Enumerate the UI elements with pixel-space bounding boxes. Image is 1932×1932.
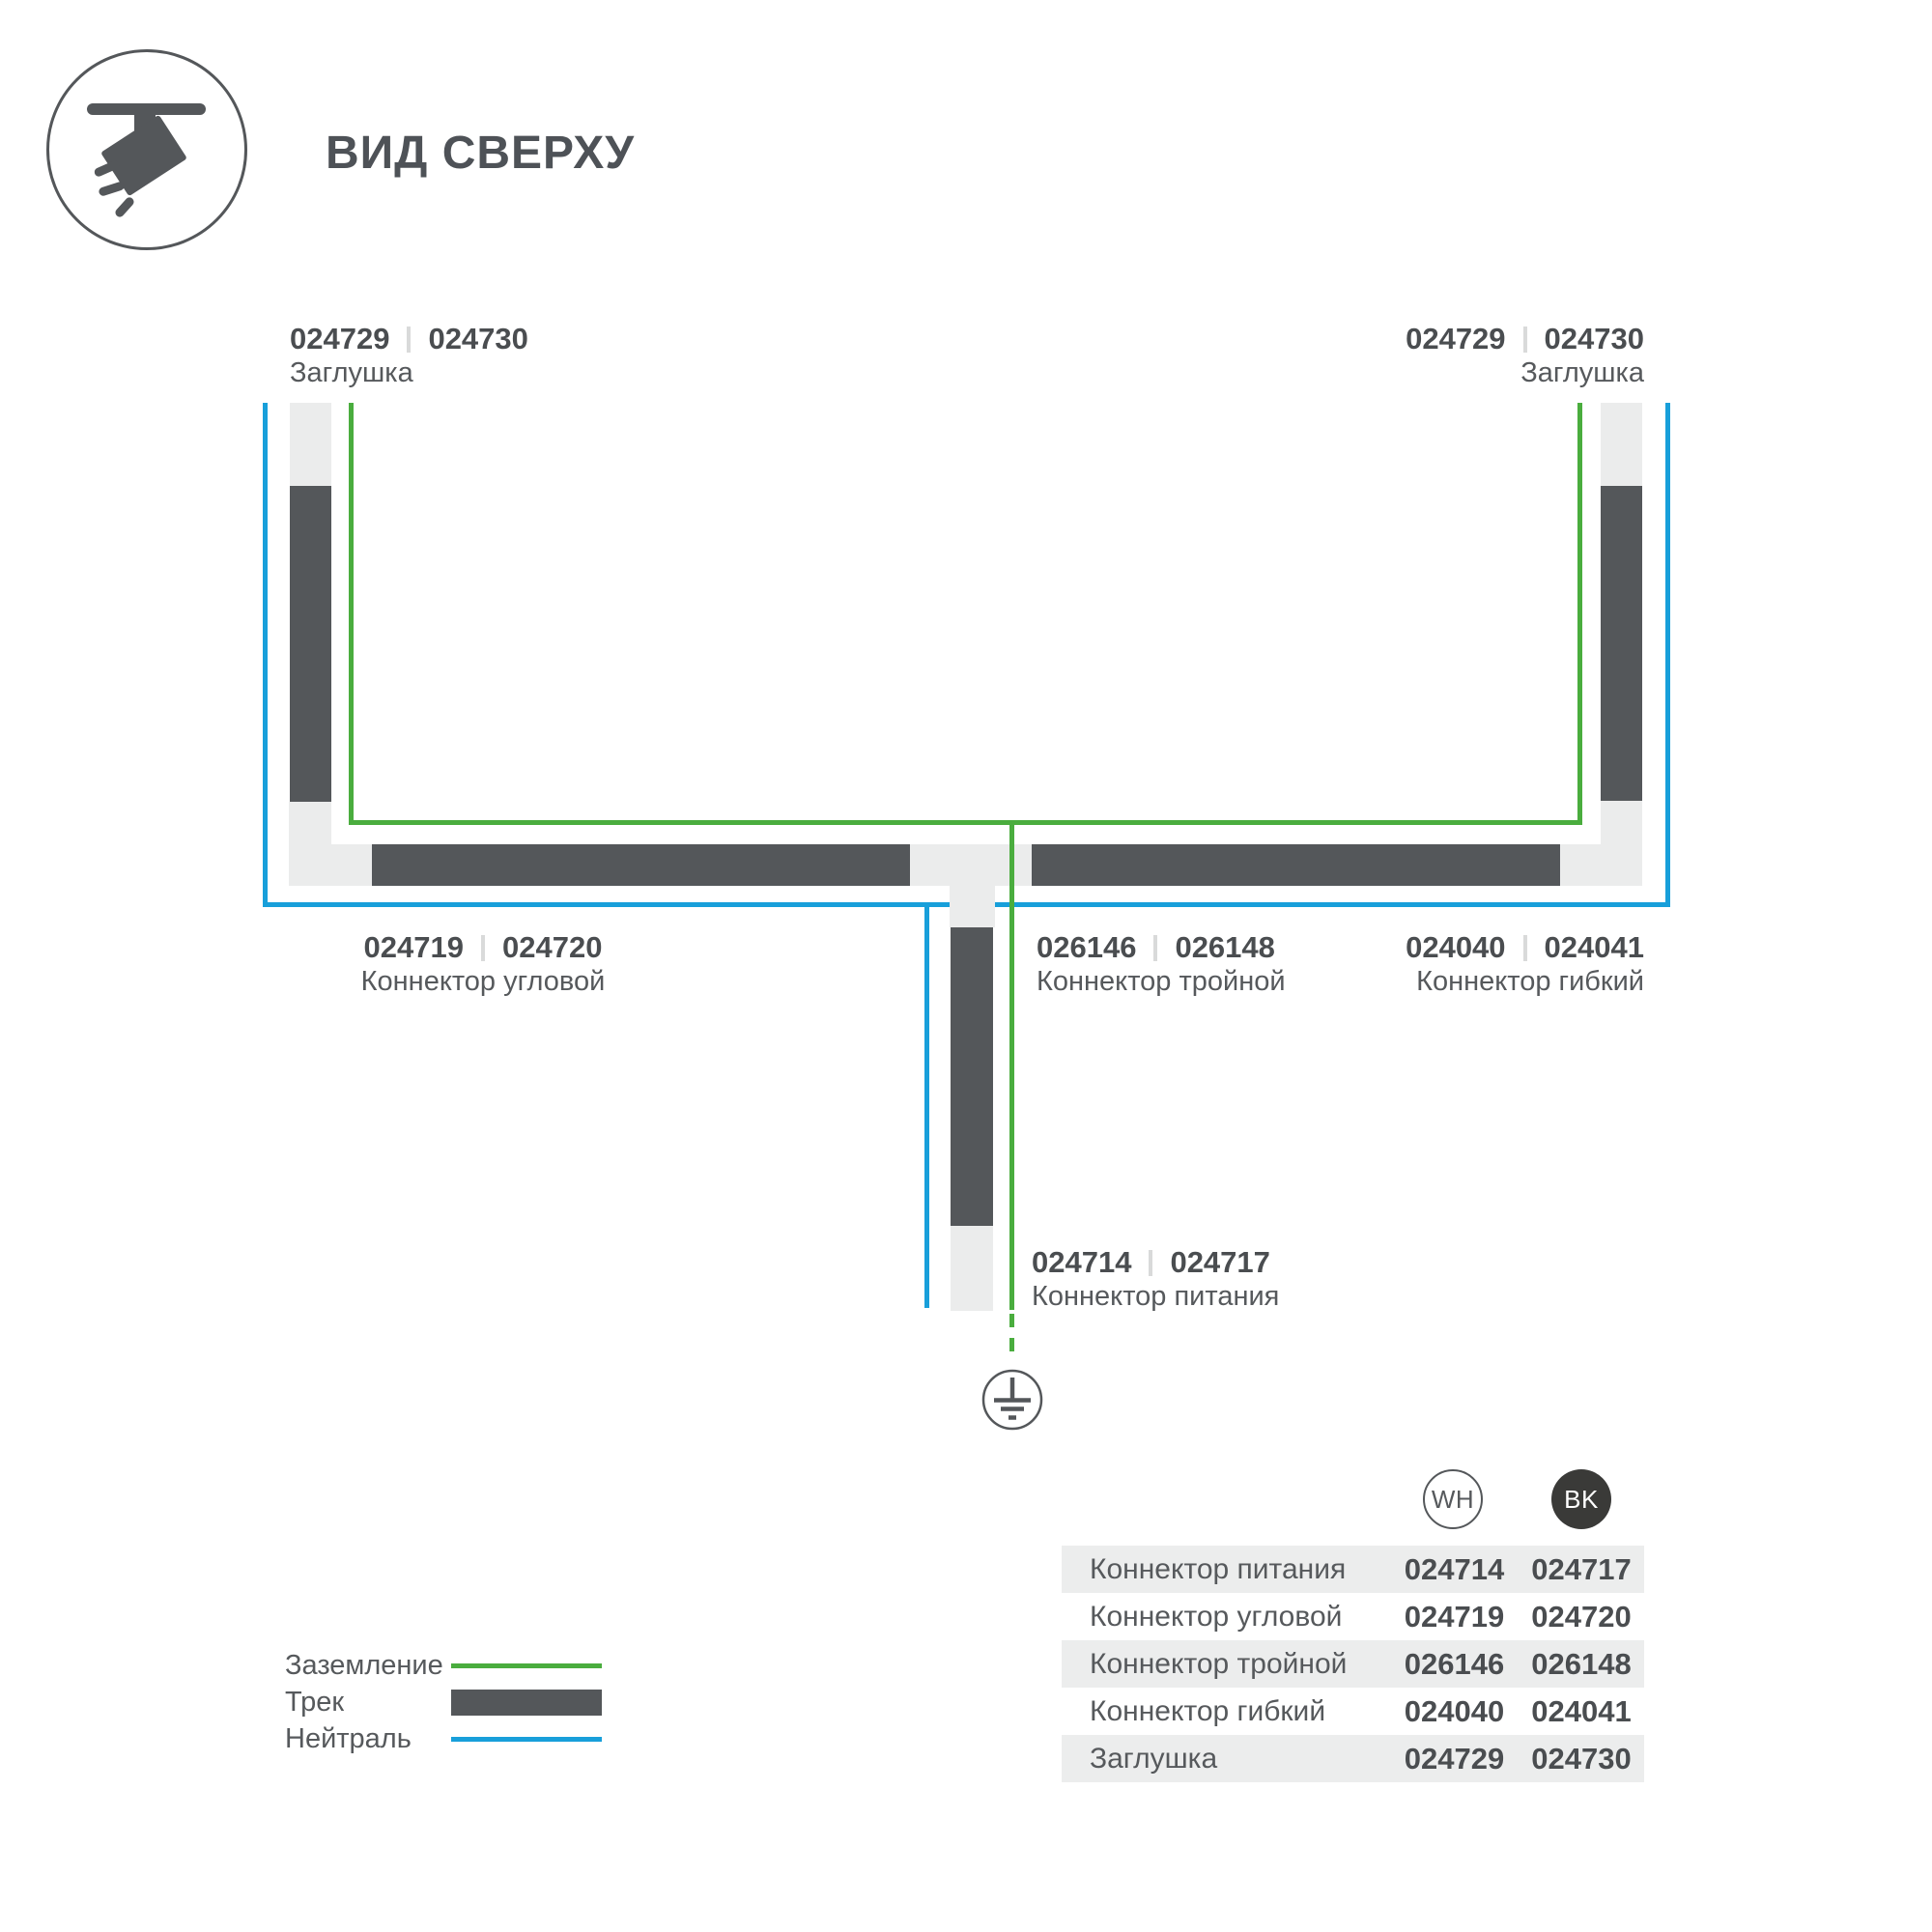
legend-label: Нейтраль — [285, 1723, 451, 1755]
track-bar-swatch — [451, 1690, 602, 1716]
corner-connector-piece — [289, 844, 372, 886]
article-code-white: 024729 — [290, 322, 389, 356]
article-code-white: 026146 — [1037, 930, 1136, 965]
part-name: Коннектор питания — [1032, 1281, 1279, 1312]
neutral-line-right — [1665, 403, 1670, 907]
neutral-line-feed-branch — [924, 907, 929, 1308]
triple-connector-stem — [950, 885, 995, 927]
ground-line-middle — [349, 820, 1582, 825]
track-segment-left-vertical — [290, 486, 331, 802]
ground-line-feed — [1009, 825, 1014, 1310]
legend: Заземление Трек Нейтраль — [285, 1647, 602, 1757]
table-row: Коннектор угловой 024719 024720 — [1062, 1593, 1644, 1640]
track-segment-horizontal-left — [372, 844, 910, 886]
article-code-black: 024730 — [428, 322, 527, 356]
article-code-black: 024730 — [1545, 322, 1644, 356]
ground-line-swatch — [451, 1663, 602, 1668]
bk-code-cell: 026148 — [1519, 1647, 1644, 1682]
code-separator — [1149, 1250, 1152, 1276]
label-endcap-right: 024729 024730 Заглушка — [1406, 323, 1644, 388]
code-separator — [481, 935, 485, 961]
legend-label: Заземление — [285, 1650, 451, 1682]
track-spotlight-icon — [46, 49, 247, 250]
neutral-line-swatch — [451, 1737, 602, 1742]
part-name: Заглушка — [1520, 357, 1644, 388]
part-name: Коннектор угловой — [361, 966, 606, 997]
column-header-label: WH — [1432, 1485, 1474, 1515]
article-codes: 026146 026148 — [1037, 931, 1286, 964]
wh-code-cell: 024714 — [1390, 1552, 1519, 1587]
legend-item-track: Трек — [285, 1684, 602, 1720]
column-header-wh: WH — [1423, 1469, 1483, 1529]
ground-line-dashed — [1009, 1314, 1014, 1360]
endcap-left-piece — [290, 403, 331, 486]
article-code-white: 024040 — [1406, 930, 1505, 965]
code-separator — [1153, 935, 1157, 961]
earth-ground-icon — [980, 1368, 1044, 1432]
column-header-label: BK — [1564, 1485, 1599, 1515]
label-triple-connector: 026146 026148 Коннектор тройной — [1037, 931, 1286, 997]
label-endcap-left: 024729 024730 Заглушка — [290, 323, 528, 388]
wh-code-cell: 024040 — [1390, 1694, 1519, 1729]
part-name-cell: Заглушка — [1062, 1743, 1390, 1776]
light-ray-glyph — [98, 181, 125, 197]
part-name-cell: Коннектор угловой — [1062, 1601, 1390, 1634]
article-code-white: 024719 — [364, 930, 464, 965]
article-code-white: 024729 — [1406, 322, 1505, 356]
track-segment-horizontal-right — [1032, 844, 1560, 886]
part-name-cell: Коннектор питания — [1062, 1553, 1390, 1586]
bk-code-cell: 024720 — [1519, 1600, 1644, 1634]
label-flexible-connector: 024040 024041 Коннектор гибкий — [1406, 931, 1644, 997]
article-codes: 024729 024730 — [290, 323, 528, 355]
ground-line-left — [349, 403, 354, 825]
wh-code-cell: 026146 — [1390, 1647, 1519, 1682]
table-row: Коннектор питания 024714 024717 — [1062, 1546, 1644, 1593]
power-connector-piece — [951, 1226, 993, 1311]
part-name-cell: Коннектор гибкий — [1062, 1695, 1390, 1728]
label-power-connector: 024714 024717 Коннектор питания — [1032, 1246, 1279, 1312]
article-code-black: 024720 — [502, 930, 602, 965]
part-name-cell: Коннектор тройной — [1062, 1648, 1390, 1681]
article-code-black: 024041 — [1545, 930, 1644, 965]
table-rows: Коннектор питания 024714 024717 Коннекто… — [1062, 1546, 1644, 1782]
bk-code-cell: 024041 — [1519, 1694, 1644, 1729]
track-segment-center-vertical — [951, 927, 993, 1226]
legend-item-ground: Заземление — [285, 1647, 602, 1684]
bk-code-cell: 024717 — [1519, 1552, 1644, 1587]
table-row: Заглушка 024729 024730 — [1062, 1735, 1644, 1782]
article-codes: 024719 024720 — [364, 931, 603, 964]
endcap-right-piece — [1601, 403, 1642, 486]
article-codes: 024040 024041 — [1406, 931, 1644, 964]
ground-line-right — [1577, 403, 1582, 825]
label-corner-connector: 024719 024720 Коннектор угловой — [290, 931, 676, 997]
part-name: Заглушка — [290, 357, 528, 388]
neutral-line-left — [263, 403, 268, 907]
bk-code-cell: 024730 — [1519, 1742, 1644, 1776]
code-separator — [1523, 327, 1527, 353]
top-view-page: ВИД СВЕРХУ 024729 024730 Заглушка — [0, 0, 1932, 1932]
code-separator — [407, 327, 411, 353]
article-codes: 024729 024730 — [1406, 323, 1644, 355]
table-row: Коннектор тройной 026146 026148 — [1062, 1640, 1644, 1688]
page-title: ВИД СВЕРХУ — [326, 127, 635, 181]
article-codes: 024714 024717 — [1032, 1246, 1279, 1279]
part-name: Коннектор тройной — [1037, 966, 1286, 997]
light-ray-glyph — [114, 196, 136, 219]
code-separator — [1523, 935, 1527, 961]
legend-label: Трек — [285, 1687, 451, 1719]
column-header-bk: BK — [1551, 1469, 1611, 1529]
track-segment-right-vertical — [1601, 486, 1642, 801]
article-code-black: 026148 — [1175, 930, 1274, 965]
flexible-connector-piece — [1560, 844, 1642, 886]
legend-item-neutral: Нейтраль — [285, 1720, 602, 1757]
table-row: Коннектор гибкий 024040 024041 — [1062, 1688, 1644, 1735]
article-code-black: 024717 — [1170, 1245, 1269, 1280]
wh-code-cell: 024719 — [1390, 1600, 1519, 1634]
article-code-white: 024714 — [1032, 1245, 1131, 1280]
part-name: Коннектор гибкий — [1416, 966, 1644, 997]
wh-code-cell: 024729 — [1390, 1742, 1519, 1776]
